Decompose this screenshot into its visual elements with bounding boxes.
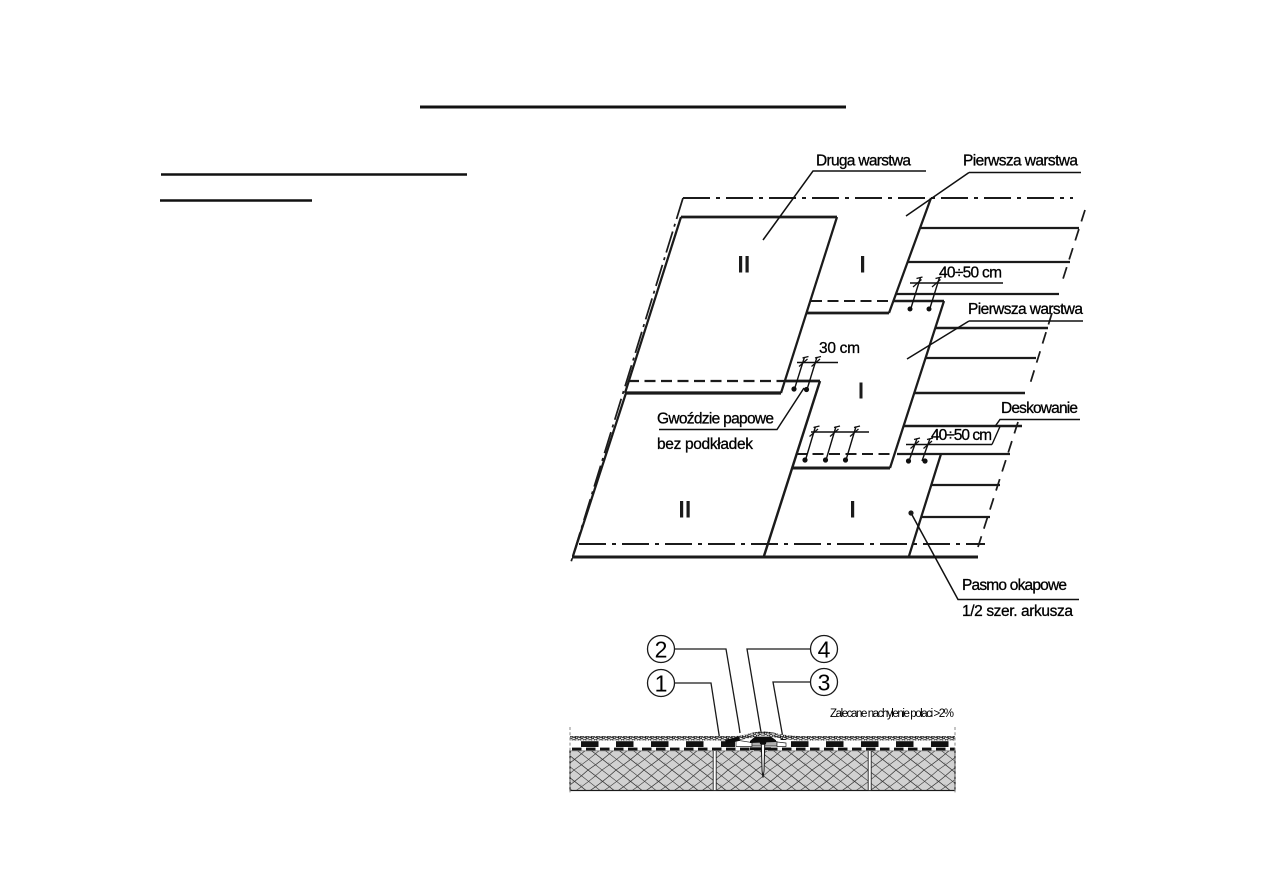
svg-text:Gwoździe papowe: Gwoździe papowe [657, 411, 774, 428]
svg-text:4: 4 [818, 637, 831, 663]
svg-text:Druga warstwa: Druga warstwa [816, 153, 911, 170]
svg-text:40÷50 cm: 40÷50 cm [939, 265, 1002, 282]
svg-text:1: 1 [655, 671, 668, 697]
svg-text:Deskowanie: Deskowanie [1001, 400, 1078, 417]
svg-text:40÷50 cm: 40÷50 cm [931, 427, 992, 444]
svg-text:Zalecane nachylenie połaci >2%: Zalecane nachylenie połaci >2% [830, 708, 954, 720]
svg-text:Pierwsza warstwa: Pierwsza warstwa [963, 153, 1078, 170]
svg-text:Pasmo okapowe: Pasmo okapowe [962, 577, 1067, 594]
svg-text:bez podkładek: bez podkładek [657, 436, 753, 453]
svg-text:30 cm: 30 cm [819, 340, 860, 357]
svg-text:3: 3 [818, 670, 831, 696]
svg-text:1/2 szer. arkusza: 1/2 szer. arkusza [962, 603, 1073, 620]
svg-text:2: 2 [655, 637, 668, 663]
svg-text:Pierwsza warstwa: Pierwsza warstwa [968, 301, 1083, 318]
